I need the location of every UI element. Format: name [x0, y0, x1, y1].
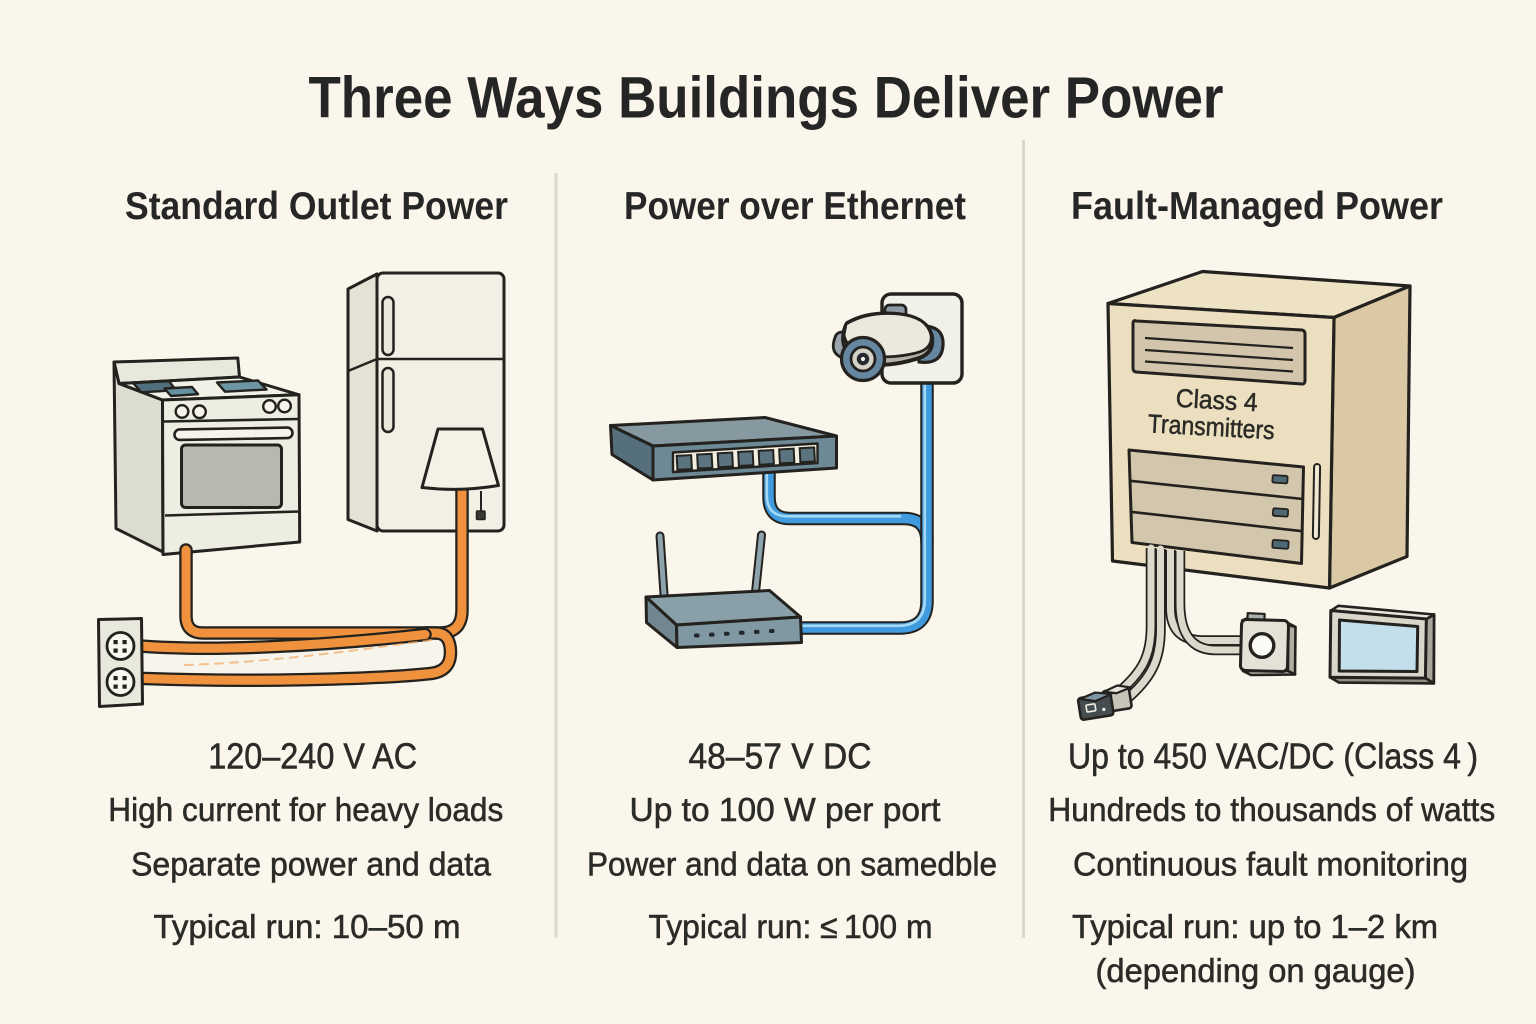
- svg-text:48–57 V DC: 48–57 V DC: [689, 736, 872, 777]
- svg-text:Three Ways Buildings Deliver P: Three Ways Buildings Deliver Power: [309, 66, 1224, 131]
- svg-text:Power and data on samedble: Power and data on samedble: [587, 846, 997, 883]
- svg-text:Typical run: up to 1–2 km: Typical run: up to 1–2 km: [1072, 908, 1438, 945]
- svg-text:Continuous fault monitoring: Continuous fault monitoring: [1073, 846, 1468, 883]
- svg-text:Typical run: 10–50 m: Typical run: 10–50 m: [154, 908, 461, 945]
- svg-text:Standard Outlet Power: Standard Outlet Power: [125, 185, 508, 228]
- svg-text:(depending on gauge): (depending on gauge): [1096, 952, 1416, 989]
- svg-text:Power over Ethernet: Power over Ethernet: [624, 185, 966, 228]
- svg-text:120–240 V AC: 120–240 V AC: [208, 736, 417, 777]
- svg-text:Typical run: ≤ 100 m: Typical run: ≤ 100 m: [649, 908, 933, 945]
- svg-text:Fault-Managed Power: Fault-Managed Power: [1071, 185, 1443, 228]
- svg-text:Up to 100 W per port: Up to 100 W per port: [630, 791, 941, 828]
- svg-text:Up to 450 VAC/DC (Class 4 ): Up to 450 VAC/DC (Class 4 ): [1068, 736, 1478, 777]
- svg-text:High current for heavy loads: High current for heavy loads: [108, 791, 503, 828]
- svg-text:Separate power and data: Separate power and data: [131, 846, 492, 883]
- svg-text:Hundreds to thousands of watts: Hundreds to thousands of watts: [1048, 791, 1495, 828]
